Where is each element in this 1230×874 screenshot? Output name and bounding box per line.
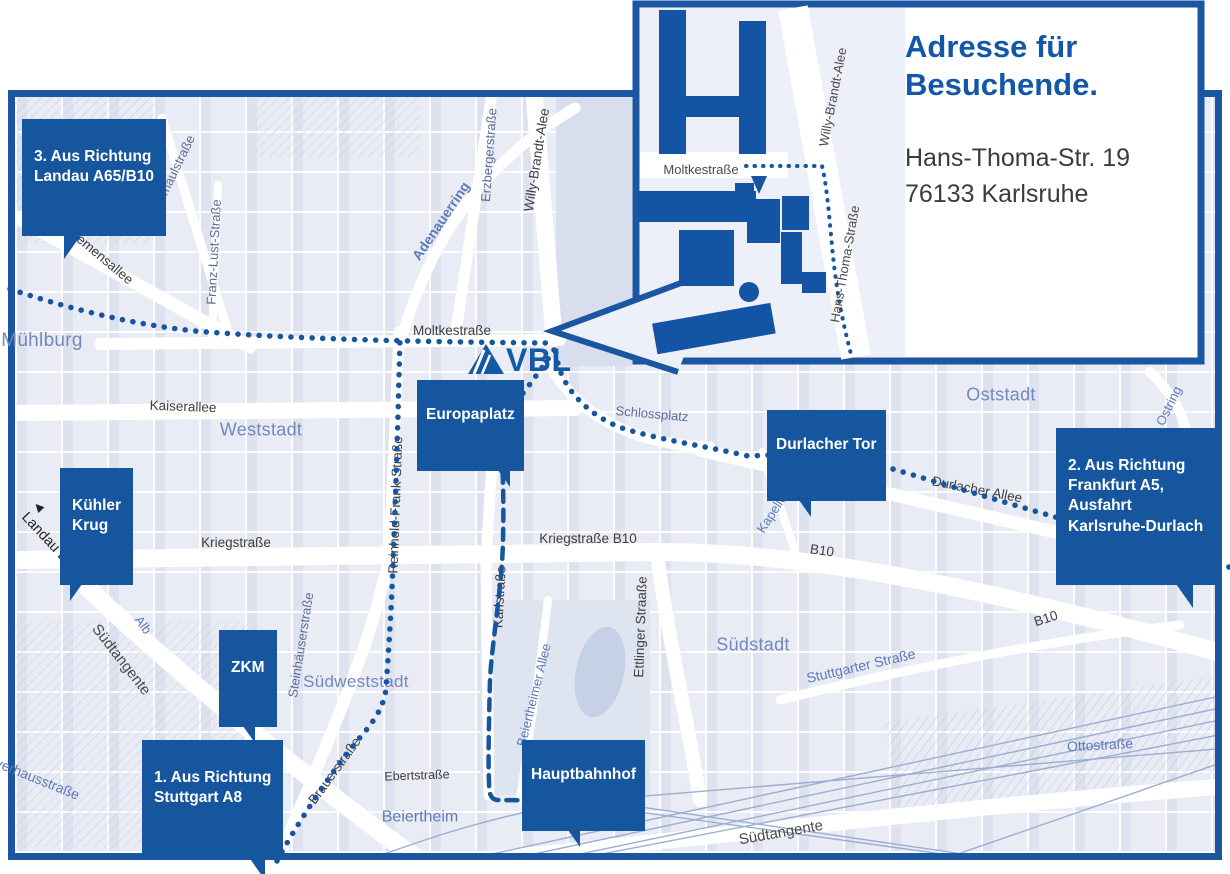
callout-tail bbox=[243, 726, 255, 743]
street-label-kaiserallee: Kaiserallee bbox=[149, 399, 216, 415]
vbl-triangle-icon bbox=[468, 344, 506, 374]
inset-street-label-moltkestrasse: Moltkestraße bbox=[663, 163, 738, 177]
callout-tail bbox=[1176, 584, 1193, 608]
callout-route-2-text: 2. Aus Richtung Frankfurt A5, Ausfahrt K… bbox=[1068, 456, 1203, 537]
street-label-kriegstrasse-b10: Kriegstraße B10 bbox=[539, 532, 637, 546]
callout-route-3-text: 3. Aus Richtung Landau A65/B10 bbox=[34, 147, 154, 187]
callout-tail bbox=[799, 500, 811, 517]
callout-hauptbahnhof: Hauptbahnhof bbox=[522, 740, 645, 831]
map-page: Siemensallee Kußmaulstraße Franz-Lust-St… bbox=[0, 0, 1230, 874]
callout-tail bbox=[568, 830, 580, 847]
callout-tail bbox=[248, 856, 265, 874]
street-label-beiertheim: Beiertheim bbox=[382, 810, 458, 827]
street-label-ottostrasse: Ottostraße bbox=[1067, 736, 1134, 754]
inset-address: Hans-Thoma-Str. 19 76133 Karlsruhe bbox=[905, 141, 1130, 212]
district-label-suedstadt: Südstadt bbox=[716, 636, 789, 655]
district-label-weststadt: Weststadt bbox=[220, 421, 302, 440]
landau-direction-arrow-icon: ◀ bbox=[31, 500, 46, 514]
callout-route-1-text: 1. Aus Richtung Stuttgart A8 bbox=[154, 768, 271, 808]
street-label-moltkestrasse: Moltkestraße bbox=[413, 324, 491, 338]
callout-tail bbox=[64, 235, 81, 259]
callout-route-1-stuttgart: 1. Aus Richtung Stuttgart A8 bbox=[142, 740, 283, 857]
district-label-suedweststadt: Südweststadt bbox=[303, 673, 409, 691]
callout-zkm: ZKM bbox=[219, 630, 277, 727]
callout-zkm-text: ZKM bbox=[231, 658, 265, 678]
callout-kuehler-krug: Kühler Krug bbox=[60, 468, 133, 585]
vbl-logo: VBL bbox=[468, 344, 572, 374]
street-label-kriegstrasse: Kriegstraße bbox=[201, 536, 271, 550]
callout-route-2-frankfurt: 2. Aus Richtung Frankfurt A5, Ausfahrt K… bbox=[1056, 428, 1215, 585]
street-label-ebertstrasse: Ebertstraße bbox=[384, 768, 450, 783]
callout-hauptbahnhof-text: Hauptbahnhof bbox=[531, 765, 636, 785]
callout-europaplatz-text: Europaplatz bbox=[426, 405, 515, 425]
callout-tail bbox=[70, 584, 82, 601]
vbl-logo-text: VBL bbox=[506, 347, 572, 374]
district-label-muehlburg: Mühlburg bbox=[1, 331, 83, 351]
district-label-oststadt: Oststadt bbox=[966, 386, 1035, 405]
callout-route-3-landau: 3. Aus Richtung Landau A65/B10 bbox=[22, 119, 166, 236]
callout-europaplatz: Europaplatz bbox=[417, 380, 524, 471]
callout-durlacher-tor-text: Durlacher Tor bbox=[776, 435, 877, 455]
callout-kuehler-krug-text: Kühler Krug bbox=[72, 496, 121, 536]
callout-durlacher-tor: Durlacher Tor bbox=[767, 410, 886, 501]
callout-tail bbox=[498, 470, 510, 487]
inset-title: Adresse für Besuchende. bbox=[905, 28, 1098, 104]
